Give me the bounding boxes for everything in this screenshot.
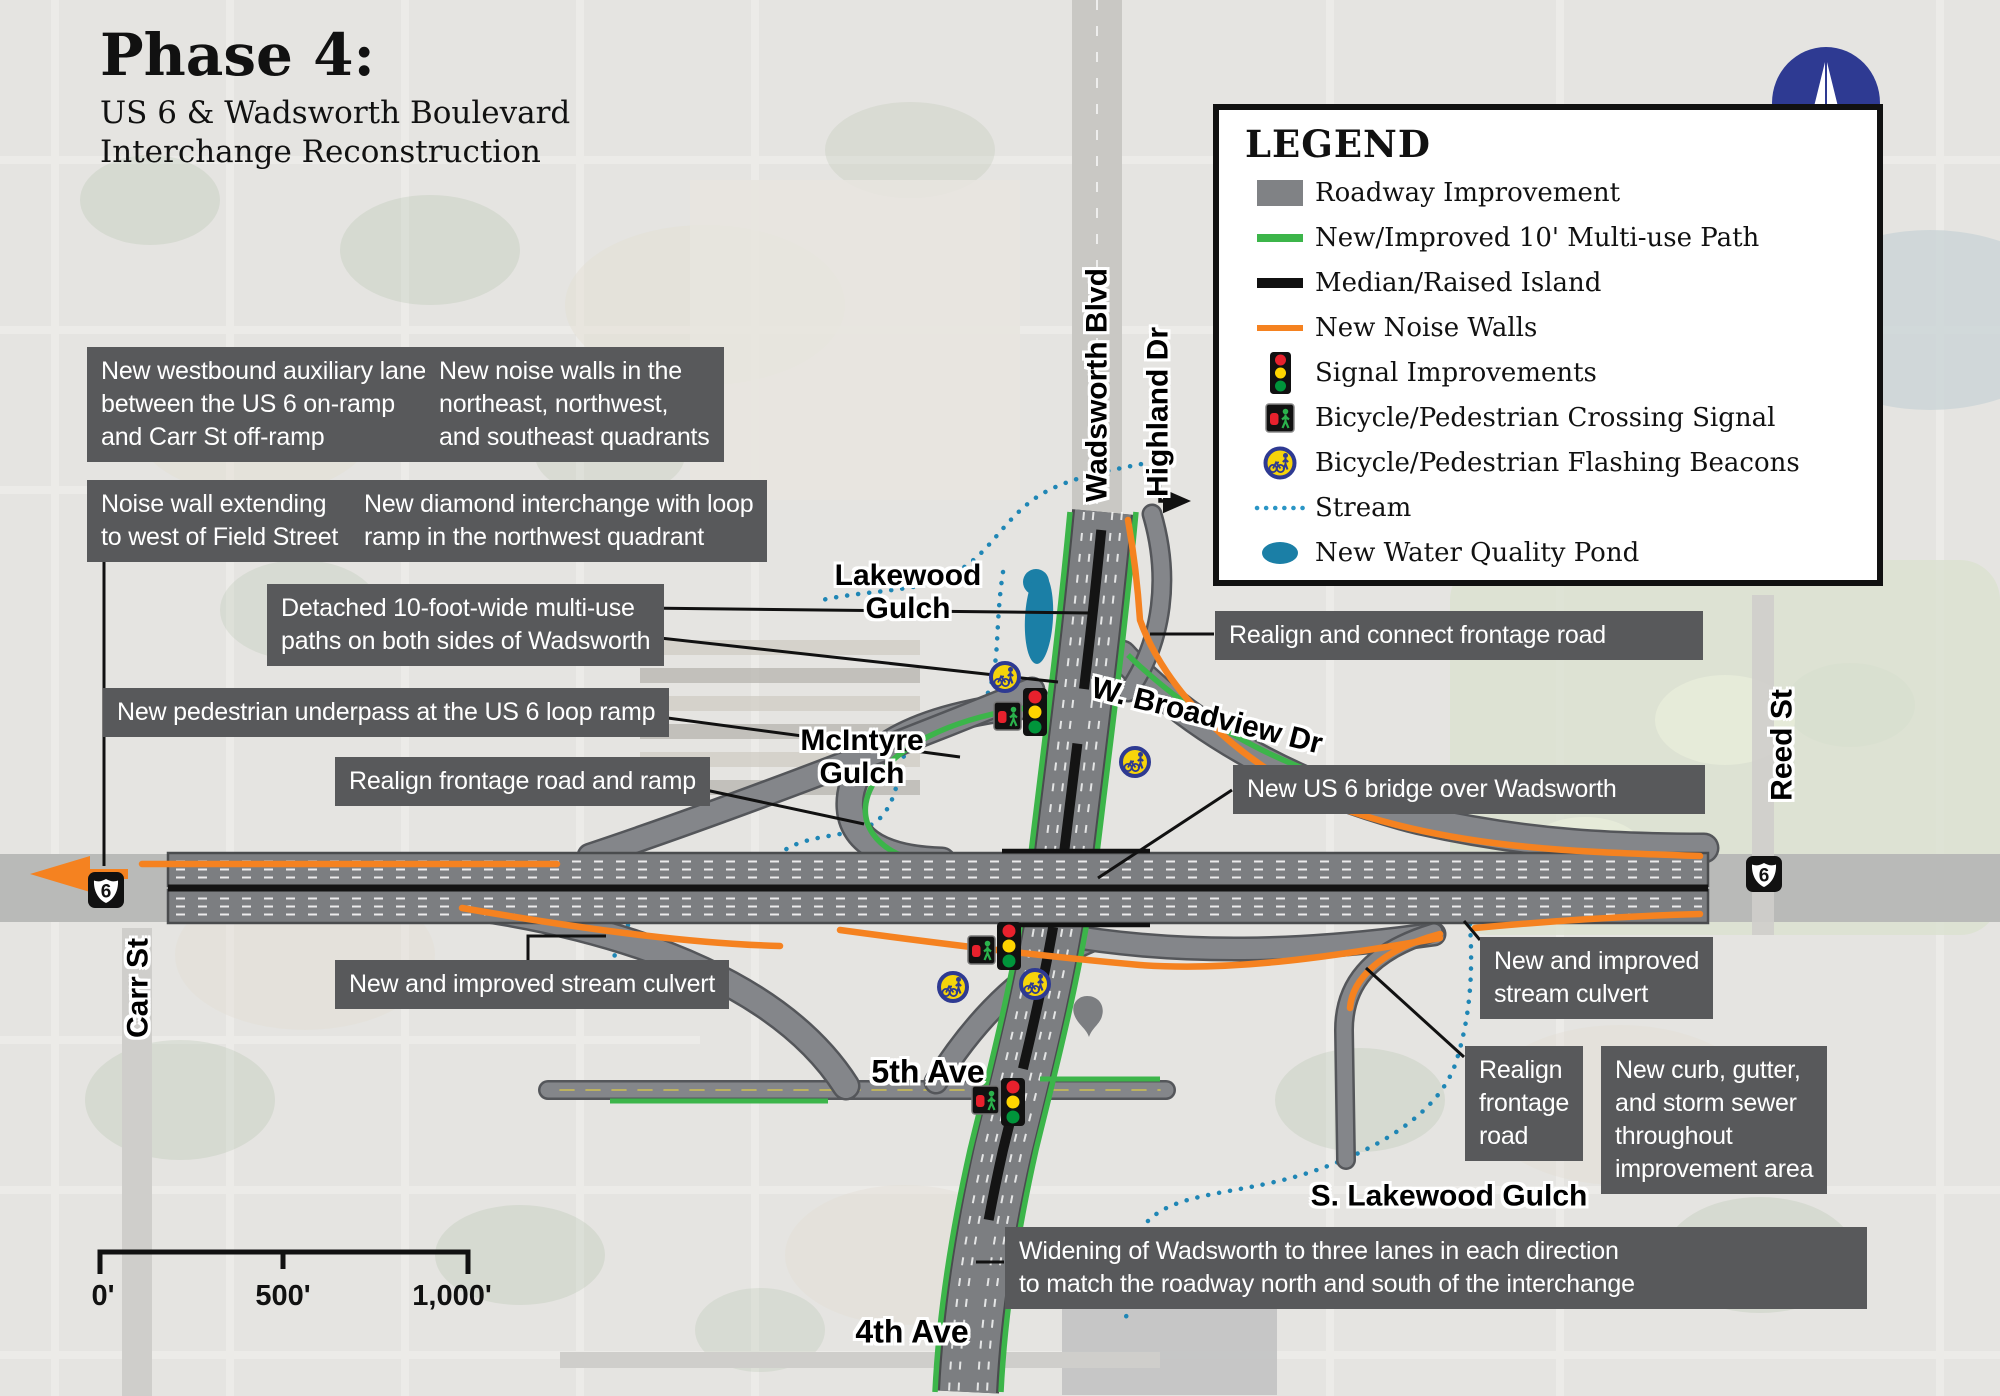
scale-label-end: 1,000' (412, 1280, 491, 1313)
label-highland-dr: Highland Dr (1142, 327, 1175, 497)
label-mcintyre-gulch: McIntyre Gulch (800, 724, 923, 790)
multiuse-path-line-icon (1245, 234, 1315, 242)
stream-dots-icon (1245, 503, 1315, 513)
label-fourth-ave: 4th Ave (855, 1316, 968, 1349)
svg-text:6: 6 (101, 882, 112, 903)
callout-noise-quadrants: New noise walls in the northeast, northw… (425, 347, 724, 462)
median-line-icon (1245, 278, 1315, 288)
pond-icon (1245, 539, 1315, 567)
callout-culvert-west: New and improved stream culvert (335, 960, 729, 1009)
traffic-signal-icon (1245, 352, 1315, 394)
interchange-map-canvas: 6 6 Phase 4: US 6 & Wadsworth Boulevard … (0, 0, 2000, 1396)
callout-culvert-east: New and improved stream culvert (1480, 937, 1713, 1019)
us6-shield-east: 6 (1746, 856, 1782, 892)
legend-row-roadway: Roadway Improvement (1245, 170, 1877, 215)
legend-row-multiuse-path: New/Improved 10' Multi-use Path (1245, 215, 1877, 260)
legend-row-noise-walls: New Noise Walls (1245, 305, 1877, 350)
legend-panel: LEGEND Roadway Improvement New/Improved … (1213, 104, 1883, 586)
svg-text:6: 6 (1759, 866, 1770, 887)
noise-wall-line-icon (1245, 325, 1315, 331)
label-s-lakewood-gulch: S. Lakewood Gulch (1311, 1180, 1588, 1213)
label-wadsworth-blvd: Wadsworth Blvd (1081, 268, 1114, 502)
page-subtitle: US 6 & Wadsworth Boulevard Interchange R… (100, 94, 570, 172)
label-fifth-ave: 5th Ave (871, 1056, 984, 1089)
label-carr-st: Carr St (122, 938, 155, 1038)
callout-realign-connect: Realign and connect frontage road (1215, 611, 1703, 660)
scale-label-middle: 500' (255, 1280, 310, 1313)
callout-realign-ramp: Realign frontage road and ramp (335, 757, 710, 806)
label-reed-st: Reed St (1766, 689, 1799, 801)
us6-median (168, 885, 1708, 892)
legend-row-median: Median/Raised Island (1245, 260, 1877, 305)
callout-aux-lane: New westbound auxiliary lane between the… (87, 347, 440, 462)
legend-row-crossing-signal: Bicycle/Pedestrian Crossing Signal (1245, 395, 1877, 440)
us6-shield-west: 6 (88, 872, 124, 908)
crossing-signal-icon (1245, 403, 1315, 433)
legend-row-flashing-beacon: Bicycle/Pedestrian Flashing Beacons (1245, 440, 1877, 485)
flashing-beacon-icon (1245, 446, 1315, 480)
legend-row-signal: Signal Improvements (1245, 350, 1877, 395)
callout-realign-frontage: Realign frontage road (1465, 1046, 1583, 1161)
callout-us6-bridge: New US 6 bridge over Wadsworth (1233, 765, 1705, 814)
legend-row-stream: Stream (1245, 485, 1877, 530)
title-block: Phase 4: US 6 & Wadsworth Boulevard Inte… (100, 24, 570, 172)
legend-row-pond: New Water Quality Pond (1245, 530, 1877, 575)
legend-title: LEGEND (1245, 122, 1877, 166)
page-title: Phase 4: (100, 24, 570, 86)
scale-label-start: 0' (91, 1280, 114, 1313)
roadway-swatch-icon (1245, 180, 1315, 206)
callout-widening: Widening of Wadsworth to three lanes in … (1005, 1227, 1867, 1309)
callout-noise-field-st: Noise wall extending to west of Field St… (87, 480, 352, 562)
label-lakewood-gulch: Lakewood Gulch (835, 559, 982, 625)
callout-curb-gutter: New curb, gutter, and storm sewer throug… (1601, 1046, 1827, 1194)
callout-diamond: New diamond interchange with loop ramp i… (350, 480, 767, 562)
callout-detached-paths: Detached 10-foot-wide multi-use paths on… (267, 584, 664, 666)
callout-ped-underpass: New pedestrian underpass at the US 6 loo… (103, 688, 669, 737)
